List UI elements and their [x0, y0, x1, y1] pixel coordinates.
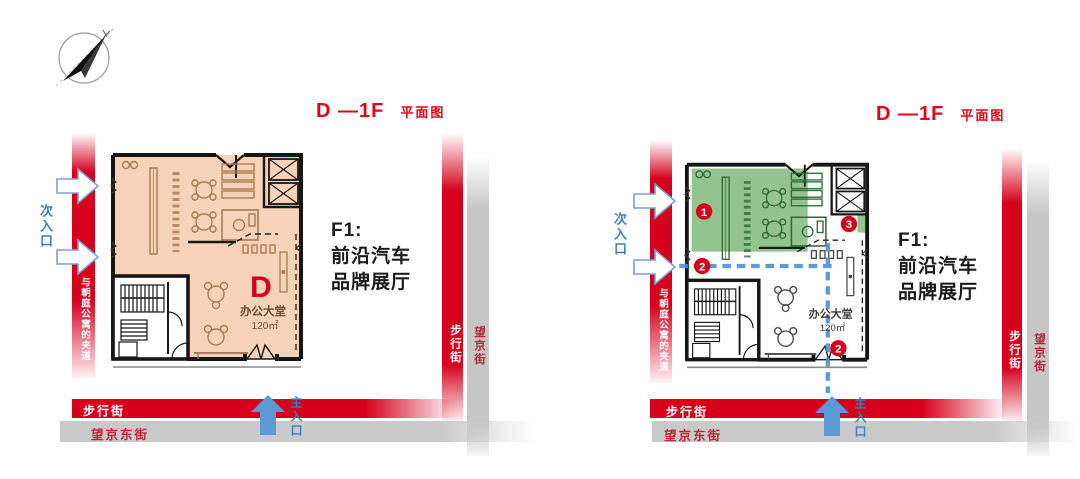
svg-text:1: 1 [701, 207, 708, 219]
stair-core [687, 280, 759, 359]
main-entrance-label: 主入口 [852, 397, 869, 439]
secondary-entrance-label: 次入口 [610, 212, 629, 257]
route-marker-2b: 2 [830, 340, 846, 356]
street-band-right-gray [467, 156, 489, 456]
wangjing-east-street-label: 望京东街 [664, 425, 722, 444]
secondary-entrance-arrow-icon [634, 183, 676, 219]
floor-title-suffix: 平面图 [400, 105, 445, 120]
floor-annotation: F1: 前沿汽车 品牌展厅 [331, 218, 411, 297]
secondary-entrance-arrow-icon [634, 249, 676, 285]
page-title: D —1F平面图 [876, 103, 1005, 126]
svg-text:3: 3 [846, 219, 852, 231]
page-title: D —1F平面图 [316, 100, 445, 123]
room-area: 120㎡ [252, 320, 279, 332]
wangjing-east-street-label: 望京东街 [91, 424, 149, 443]
route-marker-2: 2 [694, 258, 710, 274]
stair-core [113, 276, 188, 359]
route-marker-3: 3 [841, 216, 857, 232]
unit-letter: D [250, 271, 272, 304]
street-band-right-vertical [442, 133, 463, 422]
main-entrance-arrow-icon [815, 396, 849, 436]
room-name: 办公大堂 [240, 304, 286, 318]
pedestrian-street-right-label: 步行街 [1006, 330, 1022, 371]
secondary-entrance-arrow-icon [57, 239, 99, 275]
north-arrow-compass-icon [50, 24, 120, 94]
pedestrian-street-right-label: 步行街 [447, 324, 463, 365]
room-name: 办公大堂 [809, 307, 853, 321]
main-entrance-label: 主入口 [288, 396, 305, 438]
slide-canvas: D —1F平面图 [0, 0, 1080, 479]
secondary-entrance-label: 次入口 [36, 204, 55, 249]
floor-title: D —1F [876, 103, 944, 125]
floor-plan-left: D 办公大堂 120㎡ [110, 148, 304, 374]
floor-annotation: F1: 前沿汽车 品牌展厅 [898, 228, 978, 307]
alley-street-label: 与朝庭公寓的夹道 [77, 277, 91, 361]
pedestrian-street-label: 步行街 [83, 402, 125, 419]
secondary-entrance-arrow-icon [57, 168, 99, 204]
floor-plan-right: 办公大堂 120㎡ 1 2 3 2 [684, 158, 870, 374]
street-band-right-vertical [1002, 148, 1022, 422]
room-area: 120㎡ [820, 323, 846, 334]
svg-text:2: 2 [835, 344, 841, 356]
route-marker-1: 1 [696, 203, 712, 219]
wangjing-street-label: 望京街 [1031, 333, 1047, 374]
floor-title-suffix: 平面图 [960, 108, 1005, 123]
floor-title: D —1F [316, 100, 384, 122]
street-band-right-gray [1027, 160, 1049, 456]
main-entrance-arrow-icon [251, 395, 285, 435]
alley-street-label: 与朝庭公寓的夹道 [655, 288, 669, 372]
pedestrian-street-label: 步行街 [666, 403, 708, 420]
svg-text:2: 2 [699, 261, 705, 273]
wangjing-street-label: 望京街 [471, 326, 487, 367]
